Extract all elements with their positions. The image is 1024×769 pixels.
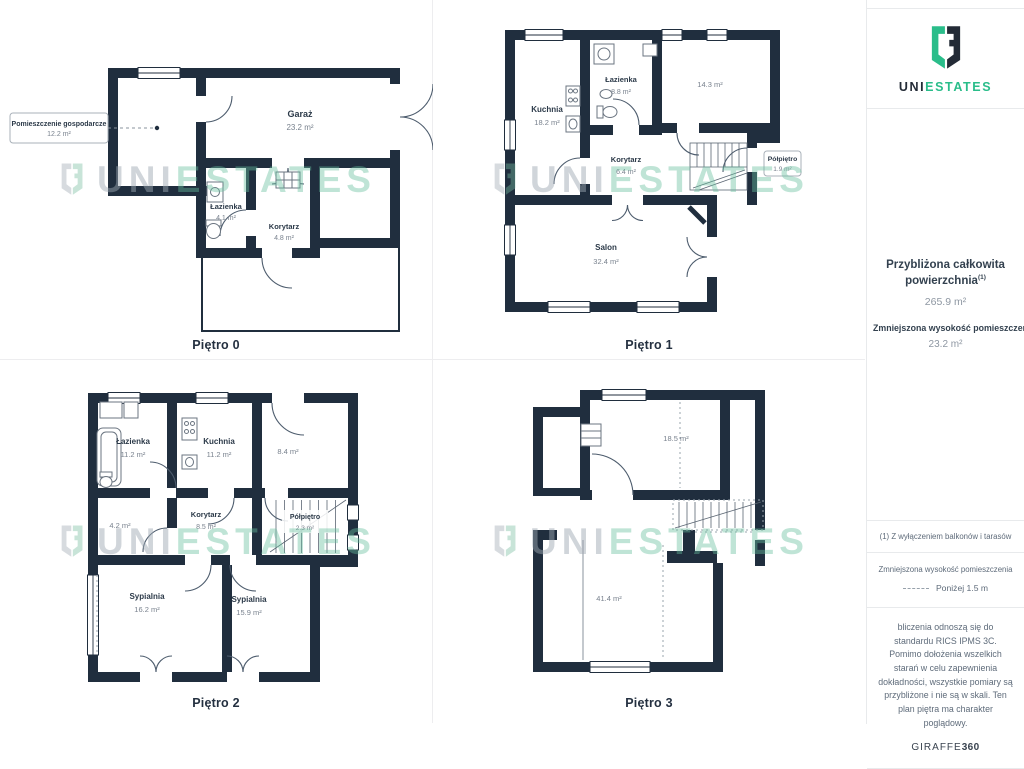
room-label-sypialnia-2: Sypialnia	[231, 595, 267, 604]
floorplan-pietro-2: Łazienka 11.2 m² Kuchnia 11.2 m² 8.4 m² …	[0, 360, 433, 723]
room-area-korytarz: 4.8 m²	[274, 235, 295, 242]
room-area-kuchnia: 11.2 m²	[207, 450, 232, 459]
legend-title: Zmniejszona wysokość pomieszczenia	[871, 565, 1020, 574]
uniestates-shield-icon	[924, 23, 968, 73]
room-area-lazienka: 11.2 m²	[121, 450, 146, 459]
room-area-korytarz: 6.4 m²	[616, 169, 637, 176]
room-area-41-4: 41.4 m²	[596, 594, 622, 603]
brand-logotype: UNIESTATES	[899, 80, 992, 94]
terrace-outline	[202, 248, 399, 331]
floor-title-pietro-3: Piętro 3	[433, 696, 865, 710]
dashed-line-sample	[903, 588, 929, 589]
utility-room-callout: Pomieszczenie gospodarcze 12.2 m²	[10, 113, 159, 143]
room-label-kuchnia: Kuchnia	[203, 437, 235, 446]
room-label-sypialnia-1: Sypialnia	[129, 592, 165, 601]
room-labels: 18.5 m² 41.4 m²	[596, 434, 689, 603]
room-label-korytarz: Korytarz	[191, 510, 222, 519]
room-area-8-4: 8.4 m²	[277, 447, 299, 456]
room-label-lazienka: Łazienka	[116, 437, 150, 446]
room-area-lazienka: 8.8 m²	[611, 89, 632, 96]
floorplan-pietro-0: Pomieszczenie gospodarcze 12.2 m² Garaż …	[0, 0, 433, 360]
quadrant-pietro-0: UNIESTATES	[0, 0, 433, 360]
room-area-sypialnia-1: 16.2 m²	[134, 605, 160, 614]
floorplan-pietro-1: Półpiętro 1.9 m² Kuchnia 18.2 m² Łazienk…	[433, 0, 865, 360]
room-area-lazienka: 4.1 m²	[216, 215, 237, 222]
room-label-korytarz: Korytarz	[269, 222, 300, 231]
reduced-height-label: Zmniejszona wysokość pomieszczenia	[873, 323, 1018, 333]
room-label-lazienka: Łazienka	[605, 75, 638, 84]
room-area-sypialnia-2: 15.9 m²	[236, 608, 262, 617]
reduced-height-legend: Zmniejszona wysokość pomieszczenia Poniż…	[867, 553, 1024, 608]
walls	[505, 30, 780, 312]
area-summary: Przybliżona całkowita powierzchnia(1) 26…	[867, 257, 1024, 350]
room-label-korytarz: Korytarz	[611, 155, 642, 164]
polpietro-callout: Półpiętro 1.9 m²	[764, 151, 801, 176]
total-area-label: Przybliżona całkowita powierzchnia(1)	[873, 257, 1018, 289]
footnote-marker: (1)	[978, 274, 986, 281]
room-area-salon: 32.4 m²	[593, 257, 619, 266]
plans-grid: UNIESTATES	[0, 0, 865, 723]
floor-title-pietro-2: Piętro 2	[0, 696, 432, 710]
credit-brand: GIRAFFE	[911, 742, 961, 753]
disclaimer-text: bliczenia odnoszą się do standardu RICS …	[878, 621, 1013, 730]
room-area-korytarz: 8.5 m²	[196, 524, 217, 531]
diagonal-door	[689, 207, 705, 223]
room-area-14-3: 14.3 m²	[697, 80, 723, 89]
room-labels: Łazienka 11.2 m² Kuchnia 11.2 m² 8.4 m² …	[109, 437, 328, 617]
room-label-kuchnia: Kuchnia	[531, 105, 563, 114]
window-icon	[138, 68, 180, 79]
floor-title-pietro-1: Piętro 1	[433, 338, 865, 352]
quadrant-pietro-1: UNIESTATES	[433, 0, 865, 360]
brand-name-uni: UNI	[899, 80, 925, 94]
room-area-kuchnia: 18.2 m²	[534, 118, 560, 127]
credit-suffix: 360	[962, 742, 980, 753]
room-label-polpietro: Półpiętro	[290, 514, 320, 521]
giraffe360-credit: GIRAFFE360	[878, 740, 1013, 756]
quadrant-pietro-2: UNIESTATES	[0, 360, 433, 723]
info-sidebar: UNIESTATES Przybliżona całkowita powierz…	[866, 0, 1024, 724]
total-area-value: 265.9 m²	[873, 296, 1018, 308]
room-label-garaz: Garaż	[287, 109, 313, 119]
footnote-exclusions: (1) Z wyłączeniem balkonów i tarasów	[867, 520, 1024, 553]
furnace-icon	[581, 424, 601, 446]
floorplan-page: UNIESTATES	[0, 0, 1024, 724]
door-arcs	[592, 454, 633, 495]
floor-title-pietro-0: Piętro 0	[0, 338, 432, 352]
room-area-18-5: 18.5 m²	[663, 434, 689, 443]
brand-logo: UNIESTATES	[867, 8, 1024, 109]
room-area-polpietro: 1.9 m²	[773, 166, 792, 173]
legend-item: Poniżej 1.5 m	[936, 583, 988, 593]
walls	[108, 68, 400, 258]
room-area-4-2: 4.2 m²	[109, 521, 131, 530]
walls	[533, 390, 765, 672]
room-label-polpietro: Półpiętro	[768, 156, 797, 163]
room-area-polpietro: 2.3 m²	[296, 525, 315, 532]
room-label-salon: Salon	[595, 243, 617, 252]
room-label-lazienka: Łazienka	[210, 202, 243, 211]
room-area-garaz: 23.2 m²	[286, 123, 313, 132]
room-area-pomieszczenie: 12.2 m²	[47, 131, 71, 138]
quadrant-pietro-3: UNIESTATES	[433, 360, 865, 723]
fixtures	[566, 44, 657, 132]
room-label-pomieszczenie: Pomieszczenie gospodarcze	[12, 121, 107, 128]
disclaimer-box: bliczenia odnoszą się do standardu RICS …	[867, 608, 1024, 769]
staircase	[673, 500, 763, 530]
reduced-height-value: 23.2 m²	[873, 339, 1018, 350]
brand-name-estates: ESTATES	[925, 80, 992, 94]
floorplan-pietro-3: 18.5 m² 41.4 m²	[433, 360, 865, 723]
